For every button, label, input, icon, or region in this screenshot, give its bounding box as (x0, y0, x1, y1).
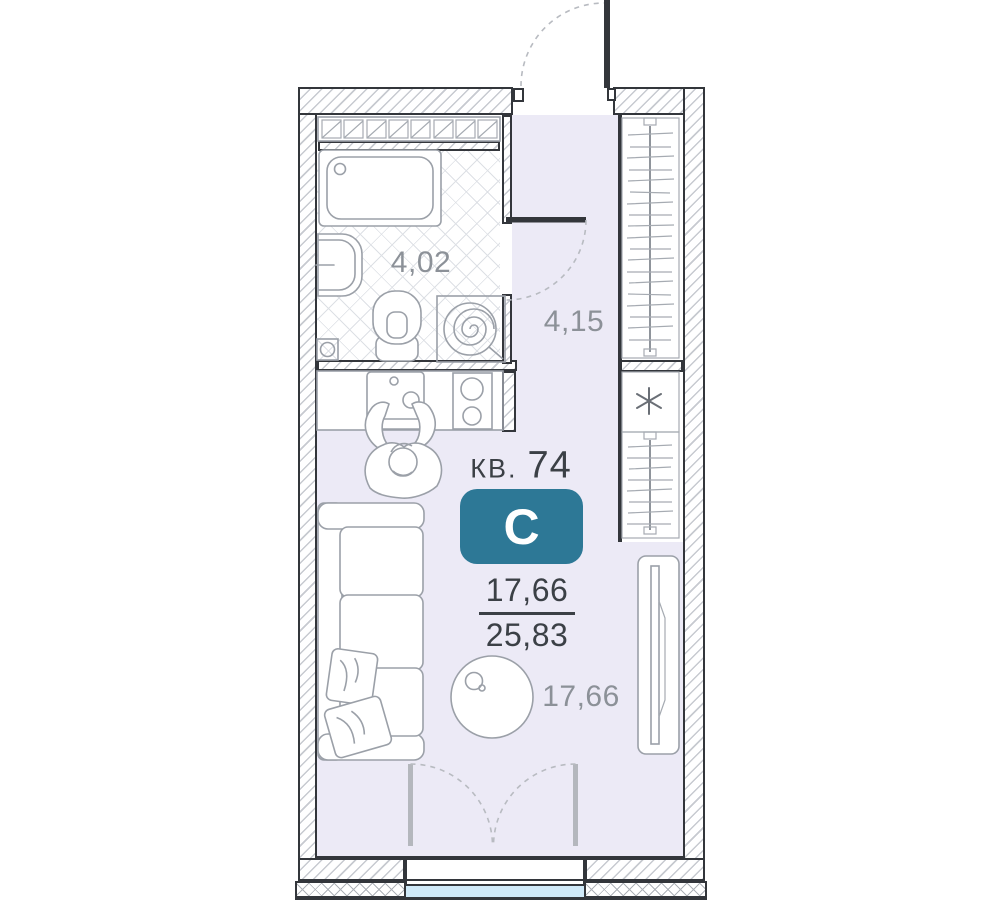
round-table (451, 656, 533, 738)
area-denominator: 25,83 (486, 617, 569, 654)
shelf-asterisk-icon (637, 388, 661, 414)
tv-console (638, 556, 679, 754)
apartment-prefix: КВ. (470, 454, 517, 485)
fraction-rule (479, 612, 575, 615)
bathroom-sink (316, 234, 362, 296)
apartment-number: 74 (527, 445, 571, 488)
area-numerator: 17,66 (486, 572, 569, 609)
bathtub (319, 150, 441, 226)
apartment-type-letter: С (503, 498, 539, 556)
floor-drain (317, 339, 338, 360)
balcony-doors (408, 764, 578, 846)
closet-shelf (622, 372, 679, 432)
stove (453, 373, 492, 429)
living-area-label: 17,66 (542, 680, 620, 714)
bathroom-area-label: 4,02 (391, 246, 451, 280)
sofa (318, 503, 424, 760)
apartment-title: КВ. 74 (470, 445, 572, 488)
hallway-area-label: 4,15 (544, 305, 604, 339)
apartment-type-badge: С (460, 489, 583, 564)
closet-rod-hangers-top (622, 118, 679, 358)
ventilation-duct (318, 117, 500, 141)
washing-machine (437, 296, 505, 362)
entry-door (521, 0, 610, 88)
toilet (373, 291, 421, 361)
area-fraction: 17,66 25,83 (479, 572, 575, 654)
closet-rod-hangers-bottom (622, 432, 679, 538)
bathroom-door (506, 217, 586, 300)
floor-plan: 4,02 4,15 17,66 КВ. 74 С 17,66 25,83 (0, 0, 1000, 900)
